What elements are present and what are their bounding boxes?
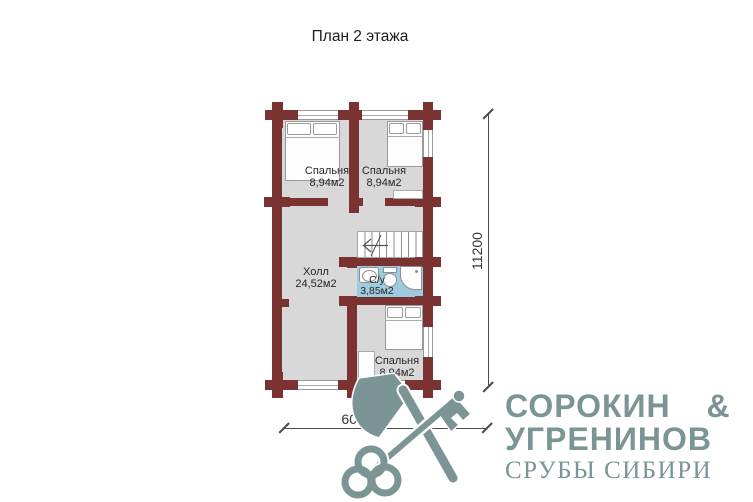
pillow <box>313 123 337 135</box>
staircase <box>357 231 423 258</box>
shower-drain <box>415 270 418 273</box>
pillow <box>287 123 311 135</box>
log-end-stub <box>282 299 289 307</box>
wall-segment <box>347 296 357 380</box>
logo-line-2: УГРЕНИНОВ <box>505 423 729 456</box>
pillow <box>406 123 421 134</box>
room-label-bedroom-tr: Спальня 8,94м2 <box>349 165 419 189</box>
door-leaf <box>393 190 423 199</box>
bed-blanket-line <box>285 137 340 138</box>
wall-segment <box>282 198 328 206</box>
log-end-stub <box>339 296 357 306</box>
room-name: Холл <box>281 266 351 278</box>
room-area: 3,85м2 <box>342 286 412 297</box>
wall-segment <box>357 258 423 266</box>
dimension-line <box>488 114 489 387</box>
room-name: Спальня <box>349 165 419 177</box>
room-area: 24,52м2 <box>281 278 351 290</box>
pillow <box>405 307 421 318</box>
window <box>362 110 408 120</box>
stair-direction-arrow <box>358 232 424 259</box>
room-area: 8,94м2 <box>349 177 419 189</box>
logo-line-1: СОРОКИН & <box>505 390 729 423</box>
bed-blanket-line <box>385 320 423 321</box>
room-name: Спальня <box>362 355 432 367</box>
page-title: План 2 этажа <box>280 28 440 46</box>
axe-icon <box>352 373 453 478</box>
room-label-hall: Холл 24,52м2 <box>281 266 351 290</box>
wall-segment <box>272 110 282 390</box>
logo-line-3: СРУБЫ СИБИРИ <box>505 457 729 485</box>
wall-segment <box>357 297 423 305</box>
window <box>423 130 433 157</box>
window <box>298 380 338 390</box>
window <box>298 110 338 120</box>
window <box>423 327 433 357</box>
pillow <box>389 123 404 134</box>
log-end-stub <box>349 191 359 213</box>
wall-segment <box>385 198 423 206</box>
room-label-bathroom: С/у 3,85м2 <box>342 275 412 297</box>
bed-blanket-line <box>387 136 423 137</box>
dimension-value-vertical: 11200 <box>469 211 485 291</box>
pillow <box>387 307 403 318</box>
crossed-axe-and-key-icon <box>333 370 483 502</box>
